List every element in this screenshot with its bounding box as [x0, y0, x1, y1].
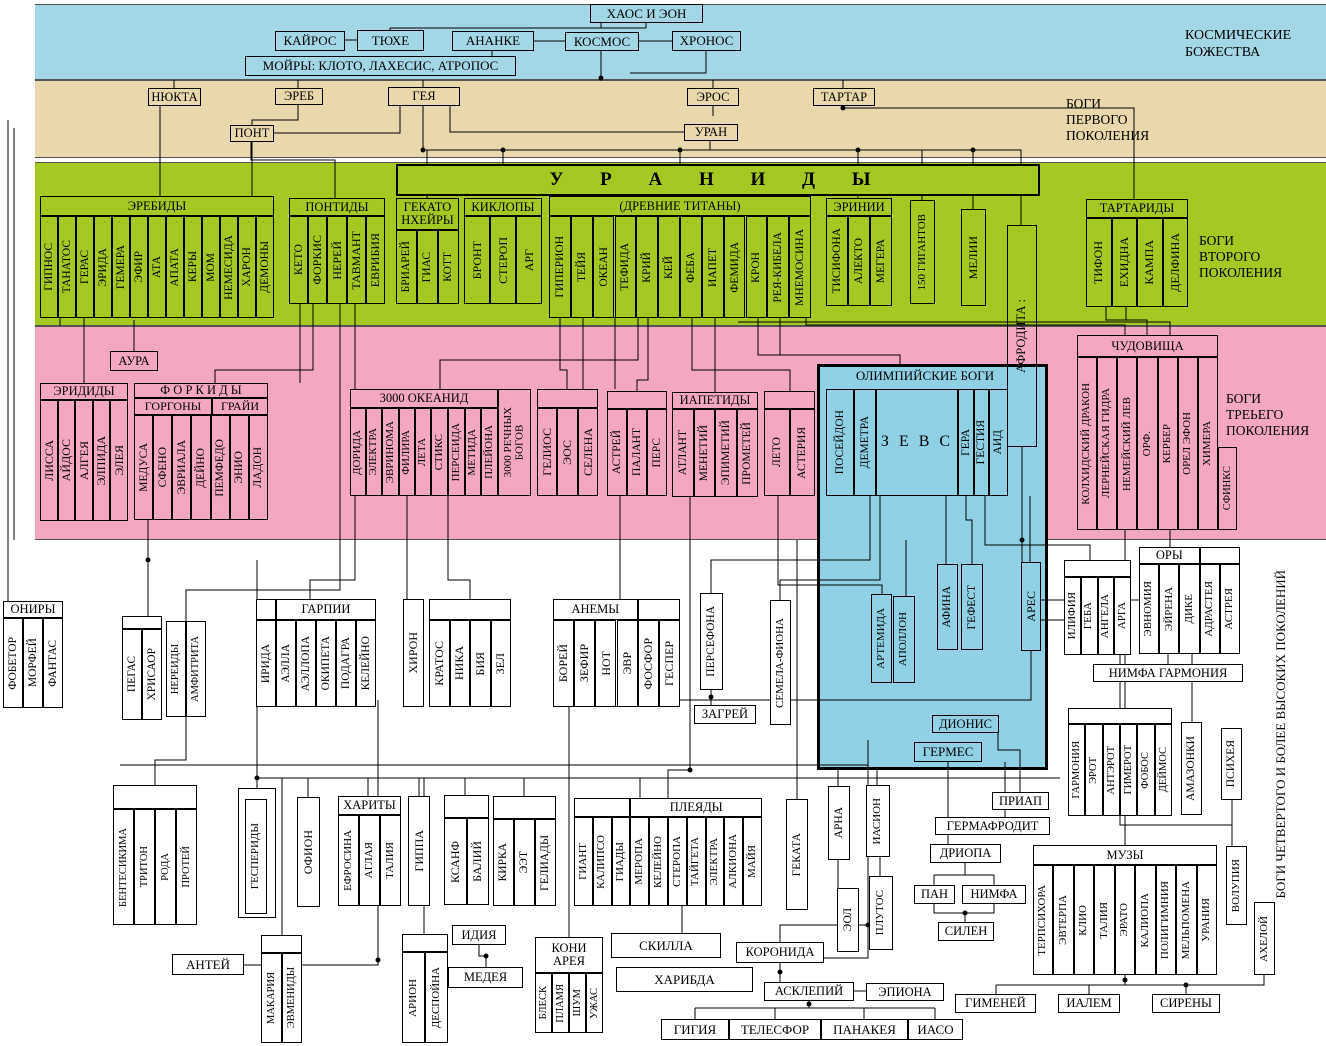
pleiades-col-3: МЕРОПА: [630, 817, 649, 906]
node-label: БОГИ ТРЕЬЕГО ПОКОЛЕНИЯ: [1226, 391, 1309, 439]
iapetids-col-3: ПРОМЕТЕЙ: [737, 409, 759, 497]
node-label: АРЕС: [1025, 591, 1038, 622]
muses-col-8: УРАНИЯ: [1197, 865, 1217, 975]
psyche: ПСИХЕЯ: [1221, 728, 1242, 800]
leto-group-col-1: АСТЕРИЯ: [790, 409, 816, 496]
node-label: ХАРОН: [241, 247, 253, 287]
oceanids-col-4: ЛЕТА: [415, 408, 431, 496]
second-gen-label: БОГИ ВТОРОГО ПОКОЛЕНИЯ: [1199, 233, 1319, 281]
cyclopes-col-1: СТЕРОП: [490, 216, 516, 304]
node-label: МАКАРИЯ: [266, 972, 277, 1024]
oceanids-header: 3000 ОКЕАНИД: [350, 389, 498, 408]
node-label: ДРИОПА: [940, 847, 992, 860]
phorkidy-col-2: ЭВРИАЛА: [172, 415, 191, 520]
node-label: ГЕКАТО НХЕЙРЫ: [401, 201, 454, 227]
titans-col-10: РЕЯ-КИБЕЛА: [767, 216, 789, 318]
node-label: АЭЛЛА: [280, 644, 292, 683]
kirka-group-col-0: КИРКА: [493, 819, 514, 906]
node-label: КИКЛОПЫ: [471, 201, 534, 214]
titans-col-3: ТЕФИДА: [615, 216, 637, 318]
node-label: ПОДАГРА: [340, 637, 352, 689]
tartar: ТАРТАР: [813, 88, 875, 106]
coronis: КОРОНИДА: [736, 942, 824, 963]
kirka-group-header: [493, 796, 556, 819]
node-label: КОРОНИДА: [746, 946, 815, 959]
pleiades-col-2: ГИАДЫ: [612, 817, 631, 906]
geya: ГЕЯ: [388, 87, 460, 106]
cyclopes-col-2: АРГ: [516, 216, 542, 304]
node-label: ЧУДОВИЩА: [1111, 340, 1183, 353]
node-label: УРАНИЯ: [1201, 898, 1213, 942]
node-label: СЕЛЕНА: [582, 428, 595, 476]
pleiades-col-6: ТАЙГЕТА: [687, 817, 706, 906]
node-label: ФЕМИДА: [729, 242, 741, 293]
ananke: АНАНКЕ: [452, 31, 534, 51]
pegas-group-header: [122, 616, 162, 629]
phorkidy-col-1: СФЕНО: [153, 415, 172, 520]
node-label: ГИАДЫ: [615, 842, 627, 881]
node-label: ЭПИМЕТИЙ: [720, 420, 732, 485]
benthesikyme-group-col-1: ТРИТОН: [134, 809, 155, 925]
node-label: ХИМЕРА: [1202, 421, 1214, 466]
erididy-col-1: АЙДОС: [58, 400, 76, 521]
oniry-col-1: МОРФЕЙ: [23, 618, 43, 708]
node-label: ДЕЛФИНА: [1169, 233, 1182, 292]
erididy-col-4: ЭЛЕЯ: [110, 400, 128, 521]
node-label: ДОРИДА: [352, 430, 364, 475]
erebidy-col-4: ГЕМЕРА: [112, 216, 130, 318]
chiron: ХИРОН: [403, 599, 424, 707]
node-label: ТАЛИЯ: [1099, 902, 1111, 939]
horae-col-4: АСТРЕЯ: [1220, 564, 1240, 654]
node-label: ПАЛАНТ: [631, 428, 643, 476]
node-label: СЕМЕЛА-ФИОНА: [775, 618, 787, 708]
oceanids-col-2: ЭВРИНОМА: [382, 408, 399, 496]
node-label: ДЕМОНЫ: [259, 241, 271, 293]
erididy-col-2: АЛГЕЯ: [75, 400, 93, 521]
charites-header: ХАРИТЫ: [338, 796, 401, 815]
moirai: МОЙРЫ: КЛОТО, ЛАХЕСИС, АТРОПОС: [245, 56, 516, 76]
artemis: АРТЕМИДА: [871, 594, 892, 683]
hecatoncheires-col-1: ГИАС: [417, 230, 438, 304]
arion-group-col-1: ДЕСПОЙНА: [425, 952, 448, 1043]
node-label: ГЕЯ: [412, 90, 435, 103]
node-label: АМАЗОНКИ: [1185, 736, 1197, 801]
node-label: ГЕБА: [1083, 602, 1095, 629]
helios-group-col-2: СЕЛЕНА: [578, 408, 598, 496]
node-label: ЗАГРЕЙ: [702, 708, 748, 721]
hermaphroditus: ГЕРМАФРОДИТ: [935, 817, 1050, 835]
node-label: ХАРИБДА: [654, 973, 715, 986]
charites-col-0: ЕФРОСИНА: [338, 815, 359, 906]
node-label: КАЛИОПА: [1140, 893, 1152, 948]
node-label: ЭРАТО: [1119, 903, 1131, 936]
cosmic-band-label: КОСМИЧЕСКИЕ БОЖЕСТВА: [1185, 28, 1325, 68]
node-label: МЕНЕТИЙ: [698, 425, 710, 481]
idia: ИДИЯ: [452, 925, 506, 945]
node-label: ЛЕТО: [771, 437, 783, 467]
cyclopes-header: КИКЛОПЫ: [464, 198, 542, 216]
node-label: ЭРОС: [697, 91, 730, 104]
astraeus-group-col-0: АСТРЕЙ: [607, 409, 627, 496]
node-label: ЭОС: [561, 440, 574, 465]
hesperides: ГЕСПЕРИДЫ: [245, 799, 267, 914]
node-label: ГЕМЕРА: [115, 245, 127, 289]
node-label: ФАНТАС: [47, 640, 59, 687]
muses-col-1: ЭВТЕРПА: [1053, 865, 1073, 975]
antaeus: АНТЕЙ: [172, 954, 244, 975]
node-label: ЭВНОМИЯ: [1143, 581, 1155, 637]
first-gen-label: БОГИ ПЕРВОГО ПОКОЛЕНИЯ: [1066, 96, 1186, 144]
horses-of-ares-col-2: ШУМ: [569, 973, 586, 1033]
kirka-group-col-1: ЭЭТ: [514, 819, 535, 906]
node-label: СКИЛЛА: [639, 939, 693, 952]
node-label: ПЛЕЯДЫ: [670, 801, 723, 814]
node-label: ОФИОН: [302, 830, 315, 874]
pontidy-col-0: КЕТО: [289, 216, 308, 304]
semela-thyone: СЕМЕЛА-ФИОНА: [770, 600, 791, 725]
node-label: НИМФА: [970, 888, 1017, 901]
scylla: СКИЛЛА: [611, 933, 721, 958]
erebidy-col-7: АПАТА: [166, 216, 184, 318]
monsters-col-5: ОРЕЛ ЭФОН: [1178, 357, 1198, 530]
node-label: ЗЕФИР: [578, 644, 591, 682]
horses-of-ares-header: КОНИ АРЕЯ: [535, 937, 603, 973]
harpies-col-0: ИРИДА: [256, 620, 276, 707]
priapus: ПРИАП: [992, 792, 1049, 810]
node-label: ПЕРСЕФОНА: [705, 606, 717, 677]
iapetids-col-1: МЕНЕТИЙ: [694, 409, 716, 497]
astraeus-group-col-2: ПЕРС: [647, 409, 667, 496]
erinyes-col-0: ТИСИФОНА: [826, 216, 848, 306]
horae-top-spacer-right: [1200, 547, 1240, 564]
hymenaeus: ГИМЕНЕЙ: [955, 994, 1036, 1013]
node-label: ЕФРОСИНА: [343, 830, 355, 891]
node-label: АЛКИОНА: [728, 834, 740, 889]
node-label: ОНИРЫ: [11, 603, 56, 616]
gigantes-150: 150 ГИГАНТОВ: [910, 200, 935, 304]
node-label: ПЕГАС: [126, 656, 138, 692]
nympha-harmonia: НИМФА ГАРМОНИЯ: [1093, 664, 1243, 682]
arion-group-col-0: АРИОН: [402, 952, 425, 1043]
ophion: ОФИОН: [297, 797, 320, 907]
kratos-group-col-3: ЗЕЛ: [491, 620, 512, 707]
kirka-group-col-2: ГЕЛИАДЫ: [535, 819, 556, 906]
node-label: ДИКЕ: [1184, 594, 1196, 624]
node-label: ПЕМФЕДО: [214, 439, 226, 497]
node-label: АРИОН: [408, 979, 420, 1017]
anemoi-top-spacer-right: [638, 599, 680, 620]
node-label: АРГА: [1117, 602, 1129, 629]
node-label: ПОНТ: [235, 127, 270, 140]
node-label: АРНА: [833, 807, 845, 838]
anemoi-col-2: НОТ: [595, 620, 616, 707]
horae-header: ОРЫ: [1139, 547, 1200, 564]
erebidy-header: ЭРЕБИДЫ: [40, 196, 274, 216]
node-label: ЭВМЕНИДЫ: [286, 967, 297, 1028]
node-label: СФИНКС: [1222, 466, 1233, 510]
erebidy-col-3: ЭРИДА: [94, 216, 112, 318]
elder-olympians-col-4: ГЕСТИЯ: [974, 389, 989, 496]
node-label: КСАНФ: [449, 841, 462, 883]
xanth-group-header: [444, 795, 489, 818]
node-label: УЖАС: [589, 988, 600, 1019]
node-label: ПОНТИДЫ: [305, 201, 368, 214]
node-label: СИРЕНЫ: [1160, 997, 1212, 1010]
node-label: АТЛАНТ: [677, 430, 689, 475]
node-label: ГЕКАТА: [791, 833, 803, 876]
pleiades-col-1: КАЛИПСО: [593, 817, 612, 906]
titans-col-8: ФЕМИДА: [724, 216, 746, 318]
node-label: ИРИДА: [260, 644, 272, 683]
node-label: КЕЛЕЙНО: [360, 636, 372, 690]
node-label: ЭРОТ: [1088, 757, 1099, 784]
node-label: БОРЕЙ: [557, 644, 570, 682]
node-label: ГИАНТ: [578, 843, 590, 880]
harmonia-group-col-1: ЭРОТ: [1085, 724, 1102, 816]
macaria-group-header: [261, 935, 302, 953]
node-label: ПЛАМЯ: [555, 984, 566, 1023]
olympians-title: ОЛИМПИЙСКИЕ БОГИ: [822, 366, 1028, 386]
harmonia-group-col-4: ФОБОС: [1137, 724, 1154, 816]
elder-olympians-col-5: АИД: [989, 389, 1008, 496]
node-label: ФОБЕТОР: [7, 637, 19, 690]
third-gen-label: БОГИ ТРЕЬЕГО ПОКОЛЕНИЯ: [1226, 391, 1326, 439]
node-label: ХРИСАОР: [146, 648, 158, 701]
node-label: АПОЛЛОН: [898, 612, 910, 666]
node-label: СФЕНО: [157, 447, 169, 487]
horae-col-3: АДРАСТЕЯ: [1200, 564, 1220, 654]
node-label: ЭРИНИИ: [833, 201, 884, 214]
dionysus: ДИОНИС: [932, 715, 999, 733]
node-label: ШУМ: [572, 989, 583, 1016]
node-label: ДЕСПОЙНА: [431, 967, 443, 1028]
hecatoncheires-col-0: БРИАРЕЙ: [396, 230, 417, 304]
node-label: ГЕРМЕС: [923, 745, 974, 758]
node-label: МЕТИДА: [467, 429, 479, 476]
node-label: ЗЕЛ: [494, 653, 507, 674]
benthesikyme-group-col-0: БЕНТЕСИКИМА: [113, 809, 134, 925]
node-label: НЕМЕСИДА: [223, 235, 235, 300]
volupia: ВОЛУПИЯ: [1226, 846, 1247, 925]
node-label: ИДИЯ: [462, 929, 497, 942]
node-label: ЭРИДИДЫ: [53, 385, 114, 398]
erebidy-col-2: ГЕРАС: [76, 216, 94, 318]
erinyes-col-1: АЛЕКТО: [848, 216, 870, 306]
node-label: ВОЛУПИЯ: [1231, 859, 1243, 912]
node-label: ЭЭТ: [518, 851, 530, 873]
harpies-header: ГАРПИИ: [276, 599, 376, 620]
erebidy-col-12: ДЕМОНЫ: [256, 216, 274, 318]
iapetids-header: ИАПЕТИДЫ: [672, 392, 758, 409]
harpies-top-spacer-left: [256, 599, 276, 620]
node-label: КАЙРОС: [283, 34, 336, 47]
node-label: ЭЛЕКТРА: [368, 428, 380, 475]
monsters-col-0: КОЛХИДСКИЙ ДРАКОН: [1077, 357, 1097, 530]
pleiades-top-spacer-left: [574, 798, 630, 817]
node-label: ТЕФИДА: [619, 243, 631, 291]
erebidy-col-11: ХАРОН: [238, 216, 256, 318]
node-label: ФОРКИС: [311, 235, 324, 285]
node-label: РЕЯ-КИБЕЛА: [772, 232, 784, 302]
helios-group-header: [537, 389, 598, 408]
harmonia-group-col-0: ГАРМОНИЯ: [1068, 724, 1085, 816]
node-label: ХИРОН: [407, 632, 420, 673]
node-label: ТЕЛЕСФОР: [741, 1023, 809, 1036]
node-label: ИАЛЕМ: [1066, 997, 1111, 1010]
titans-col-9: КРОН: [746, 216, 768, 318]
node-label: ЭВР: [621, 652, 634, 675]
node-label: ГЕФЕСТ: [966, 585, 978, 629]
node-label: ОКЕАН: [598, 247, 610, 287]
node-label: ГИМЕНЕЙ: [965, 997, 1026, 1010]
hermes: ГЕРМЕС: [914, 742, 982, 762]
node-label: КЕРЫ: [187, 251, 199, 282]
ilithyia-group-col-1: ГЕБА: [1081, 577, 1098, 655]
epione: ЭПИОНА: [866, 983, 944, 1001]
hygieia: ГИГИЯ: [661, 1019, 729, 1040]
node-label: КЕРБЕР: [1162, 424, 1174, 463]
macaria-group-col-0: МАКАРИЯ: [261, 953, 282, 1043]
node-label: КРОН: [750, 252, 762, 283]
node-label: МЕЛЬПОМЕНА: [1181, 881, 1193, 959]
horae-col-1: ЭЙРЕНА: [1159, 564, 1179, 654]
node-label: МЕГЕРА: [875, 239, 887, 283]
node-label: БЕНТЕСИКИМА: [118, 828, 129, 907]
muses-col-6: ПОЛИГИМНИЯ: [1156, 865, 1176, 975]
node-label: ГЕРМАФРОДИТ: [947, 820, 1039, 833]
node-label: ОЛИМПИЙСКИЕ БОГИ: [856, 368, 994, 383]
node-label: МЕРОПА: [634, 838, 646, 885]
ilithyia-group-col-0: ИЛИФИЯ: [1064, 577, 1081, 655]
node-label: ОРЫ: [1156, 549, 1183, 562]
erinyes-header: ЭРИНИИ: [826, 198, 892, 216]
node-label: МАЙЯ: [747, 845, 759, 878]
node-label: НИКА: [453, 646, 466, 680]
ilithyia-group-col-3: АРГА: [1114, 577, 1131, 655]
node-label: ЭВРИНОМА: [385, 421, 397, 483]
node-label: ТИФОН: [1092, 241, 1105, 284]
ereb: ЭРЕБ: [275, 88, 323, 105]
titans-col-6: ФЕБА: [680, 216, 702, 318]
pontidy-header: ПОНТИДЫ: [289, 198, 385, 216]
node-label: КЕЙ: [663, 256, 675, 279]
oceanids-col-9: 3000 РЕЧНЫХ БОГОВ: [498, 389, 531, 496]
node-label: ЭРИДА: [97, 248, 109, 286]
node-label: АДРАСТЕЯ: [1204, 581, 1216, 637]
cyclopes-col-0: БРОНТ: [464, 216, 490, 304]
muses-col-2: КЛИО: [1074, 865, 1094, 975]
node-label: АТА: [151, 256, 163, 278]
asclepius: АСКЛЕПИЙ: [764, 982, 854, 1001]
hippa: ГИППА: [408, 796, 430, 906]
node-label: ПЕРСЕИДА: [451, 423, 463, 481]
eros: ЭРОС: [687, 88, 739, 106]
chronos: ХРОНОС: [672, 31, 741, 51]
greek-gods-genealogy-diagram: КОСМИЧЕСКИЕ БОЖЕСТВАБОГИ ПЕРВОГО ПОКОЛЕН…: [0, 0, 1326, 1046]
node-label: ЭНИО: [233, 451, 245, 484]
node-label: БОГИ ВТОРОГО ПОКОЛЕНИЯ: [1199, 233, 1282, 281]
node-label: СТЕРОП: [497, 237, 510, 284]
titans-col-0: ГИПЕРИОН: [549, 216, 571, 318]
harpies-col-1: АЭЛЛА: [276, 620, 296, 707]
node-label: ФОСФОР: [642, 638, 655, 689]
node-label: НЕРЕЙ: [331, 241, 344, 280]
node-label: ТАВМАНТ: [350, 231, 363, 290]
node-label: АМФИТРИТА: [190, 636, 201, 702]
node-label: ФИЛИРА: [401, 430, 413, 475]
node-label: ДИОНИС: [939, 718, 992, 731]
phorkidy-col-4: ПЕМФЕДО: [211, 415, 230, 520]
node-label: ЭВТЕРПА: [1058, 895, 1070, 945]
node-label: ЭФИР: [133, 251, 145, 282]
node-label: ХАРИТЫ: [343, 799, 396, 812]
node-label: АИД: [992, 430, 1004, 454]
node-label: АСТЕРИЯ: [796, 427, 808, 479]
node-label: НОТ: [600, 651, 613, 676]
titans-header: (ДРЕВНИЕ ТИТАНЫ): [549, 196, 811, 216]
node-label: КЛИО: [1078, 905, 1090, 936]
pegas-group-col-0: ПЕГАС: [122, 629, 142, 720]
hephaestus: ГЕФЕСТ: [961, 564, 983, 650]
muses-col-7: МЕЛЬПОМЕНА: [1176, 865, 1196, 975]
phorkidy-header: Ф О Р К И Д Ы: [134, 383, 268, 398]
node-label: ЛЕТА: [417, 438, 429, 466]
elder-olympians-col-3: ГЕРА: [958, 389, 974, 496]
leto-group-header: [764, 391, 815, 409]
node-label: ГОРГОНЫ: [145, 400, 201, 412]
node-label: ЭЛЕКТРА: [709, 838, 721, 885]
node-label: БРОНТ: [471, 241, 484, 279]
node-label: АНТЭРОТ: [1106, 746, 1117, 794]
node-label: ЭРЕБИДЫ: [128, 200, 186, 213]
node-label: АЛГЕЯ: [78, 441, 91, 480]
node-label: АНАНКЕ: [466, 34, 520, 47]
pontidy-col-2: НЕРЕЙ: [327, 216, 346, 304]
arion-group-header: [402, 934, 448, 952]
node-label: ЭРЕБ: [284, 90, 314, 103]
node-label: ПАН: [921, 888, 948, 901]
node-label: ЭЛПИДА: [95, 436, 108, 486]
node-label: АЙДОС: [60, 439, 73, 481]
elder-olympians-col-0: ПОСЕЙДОН: [826, 389, 854, 496]
node-label: ИАСО: [917, 1023, 953, 1036]
harpies-col-4: ПОДАГРА: [336, 620, 356, 707]
elder-olympians-col-1: ДЕМЕТРА: [854, 389, 876, 496]
horses-of-ares-col-3: УЖАС: [586, 973, 603, 1033]
node-label: ОРЕЛ ЭФОН: [1182, 412, 1194, 475]
node-label: НЮКТА: [151, 91, 197, 104]
ialemus: ИАЛЕМ: [1058, 994, 1120, 1013]
node-label: МЕЛИИ: [967, 236, 980, 279]
hecatoncheires-col-2: КОТТ: [438, 230, 459, 304]
node-label: ФОБОС: [1140, 752, 1151, 789]
telesphorus: ТЕЛЕСФОР: [729, 1019, 821, 1040]
phorkidy-col-6: ЛАДОН: [249, 415, 268, 520]
muses-header: МУЗЫ: [1033, 845, 1217, 865]
node-label: МОРФЕЙ: [27, 638, 39, 687]
nereids-group-col-1: АМФИТРИТА: [186, 621, 206, 717]
muses-col-3: ТАЛИЯ: [1094, 865, 1114, 975]
nympha: НИМФА: [962, 885, 1026, 904]
oceanids-col-7: МЕТИДА: [465, 408, 481, 496]
pleiades-col-0: ГИАНТ: [574, 817, 593, 906]
node-label: НЕРЕИДЫ: [170, 644, 181, 694]
astraeus-group-col-1: ПАЛАНТ: [627, 409, 647, 496]
node-label: АСТРЕЙ: [611, 430, 623, 474]
charites-col-2: ТАЛИЯ: [380, 815, 401, 906]
titans-col-1: ТЕЙЯ: [571, 216, 593, 318]
